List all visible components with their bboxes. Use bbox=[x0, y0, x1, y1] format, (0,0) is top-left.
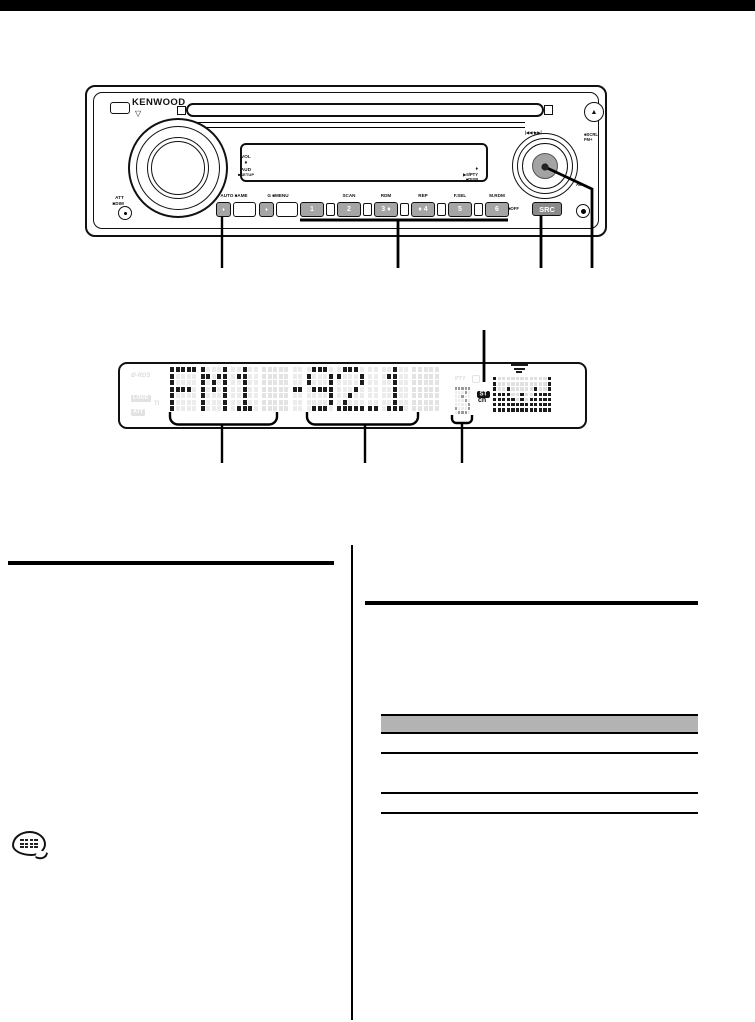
eject-button: ▲ bbox=[584, 102, 604, 122]
att-dim-button-dot bbox=[124, 212, 127, 215]
preset-label-4: REP bbox=[411, 193, 435, 198]
off-label: ■OFF bbox=[508, 206, 519, 211]
reset-button-dot bbox=[581, 209, 586, 214]
display-text bbox=[170, 367, 439, 411]
am-label: AM- bbox=[576, 182, 584, 187]
manual-page: KENWOOD ▽ ATT ■DIM VOL ♦ AUD ■SETUP AUTO… bbox=[0, 0, 755, 1022]
ch-label: ch bbox=[478, 397, 486, 404]
table-row-line-3 bbox=[381, 812, 698, 814]
scrl-fm-label: ■SCRL FM+ bbox=[584, 132, 598, 142]
faceplate-release-button bbox=[110, 102, 130, 114]
src-button: SRC bbox=[532, 202, 562, 216]
preset-button-5: 5 bbox=[448, 202, 472, 217]
att-dim-label: ATT ■DIM bbox=[98, 195, 124, 206]
cd-slot-cap-right bbox=[544, 105, 553, 115]
preset-button-3: 3 ♦ bbox=[374, 202, 398, 217]
cd-slot bbox=[186, 103, 544, 117]
slot-shadow-line bbox=[190, 127, 525, 128]
auto-ame-button bbox=[233, 202, 256, 217]
table-row-line-2 bbox=[381, 792, 698, 794]
preset-label-3: RDM bbox=[374, 193, 398, 198]
auto-ame-label: AUTO ■AME bbox=[210, 193, 258, 198]
antenna-icon bbox=[510, 364, 528, 373]
small-button bbox=[474, 203, 483, 216]
volume-knob-ring bbox=[151, 141, 205, 195]
preset-label-5: F.SEL bbox=[448, 193, 472, 198]
dim-label: ■DIM bbox=[98, 201, 124, 207]
ti-indicator: TI bbox=[154, 401, 159, 407]
preset-button-2: 2 bbox=[337, 202, 361, 217]
open-triangle-icon: ▽ bbox=[135, 109, 141, 118]
menu-button bbox=[276, 202, 298, 217]
small-button bbox=[363, 203, 372, 216]
pty-indicator: PTY bbox=[455, 376, 466, 382]
preset-label-6: M.RDM bbox=[485, 193, 509, 198]
small-button bbox=[326, 203, 335, 216]
preset-label-2: SCAN bbox=[337, 193, 361, 198]
spectrum-analyzer bbox=[493, 377, 551, 412]
preset-button-6: 6 bbox=[485, 202, 509, 217]
preset-button-4: ♦ 4 bbox=[411, 202, 435, 217]
column-divider bbox=[351, 545, 353, 1020]
small-button bbox=[437, 203, 446, 216]
table-row-line-1 bbox=[381, 752, 698, 754]
rds-indicator: Ø-RDS bbox=[131, 373, 150, 379]
section-rule-right bbox=[365, 601, 698, 605]
slot-shadow-line bbox=[190, 122, 525, 123]
note-bubble-icon bbox=[12, 831, 46, 856]
preset-button-1: 1 bbox=[300, 202, 324, 217]
channel-digit bbox=[455, 387, 470, 414]
table-header bbox=[381, 714, 698, 734]
knob-press-label: ♦ ▶II/PTY ■DISP bbox=[444, 166, 478, 182]
tuner-knob-center bbox=[532, 153, 558, 179]
auto-ame-diamond-button: ♦ bbox=[216, 202, 231, 217]
section-rule-left bbox=[8, 561, 334, 565]
small-button bbox=[400, 203, 409, 216]
eject-icon: ▲ bbox=[591, 109, 598, 116]
page-top-bar bbox=[0, 0, 755, 11]
menu-label: G ■MENU bbox=[255, 193, 301, 198]
cd-slot-cap-left bbox=[177, 106, 186, 115]
note-bubble-dashes bbox=[20, 839, 38, 848]
menu-diamond-button: ♦ bbox=[259, 202, 274, 217]
att-indicator: ATT bbox=[131, 400, 145, 418]
